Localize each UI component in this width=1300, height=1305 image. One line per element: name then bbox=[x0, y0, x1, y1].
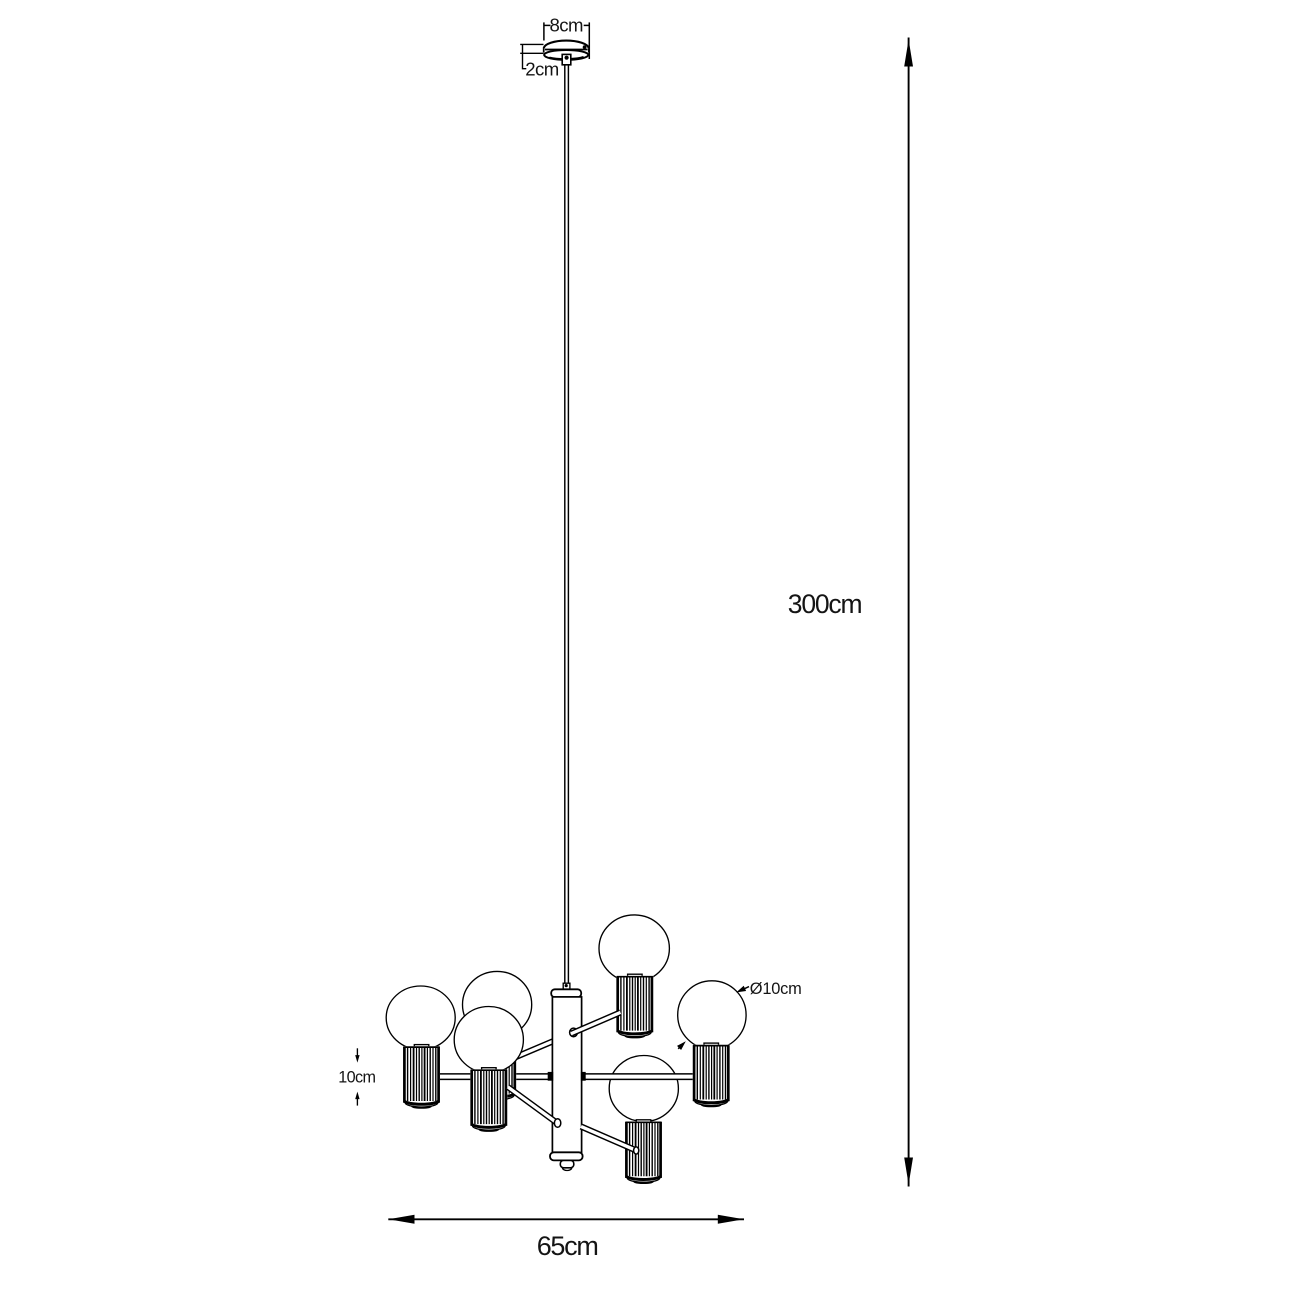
svg-text:65cm: 65cm bbox=[537, 1231, 598, 1261]
svg-text:10cm: 10cm bbox=[338, 1068, 375, 1086]
svg-text:2cm: 2cm bbox=[525, 59, 558, 80]
svg-text:Ø10cm: Ø10cm bbox=[750, 980, 802, 998]
svg-text:300cm: 300cm bbox=[788, 589, 862, 619]
svg-text:8cm: 8cm bbox=[550, 15, 583, 36]
